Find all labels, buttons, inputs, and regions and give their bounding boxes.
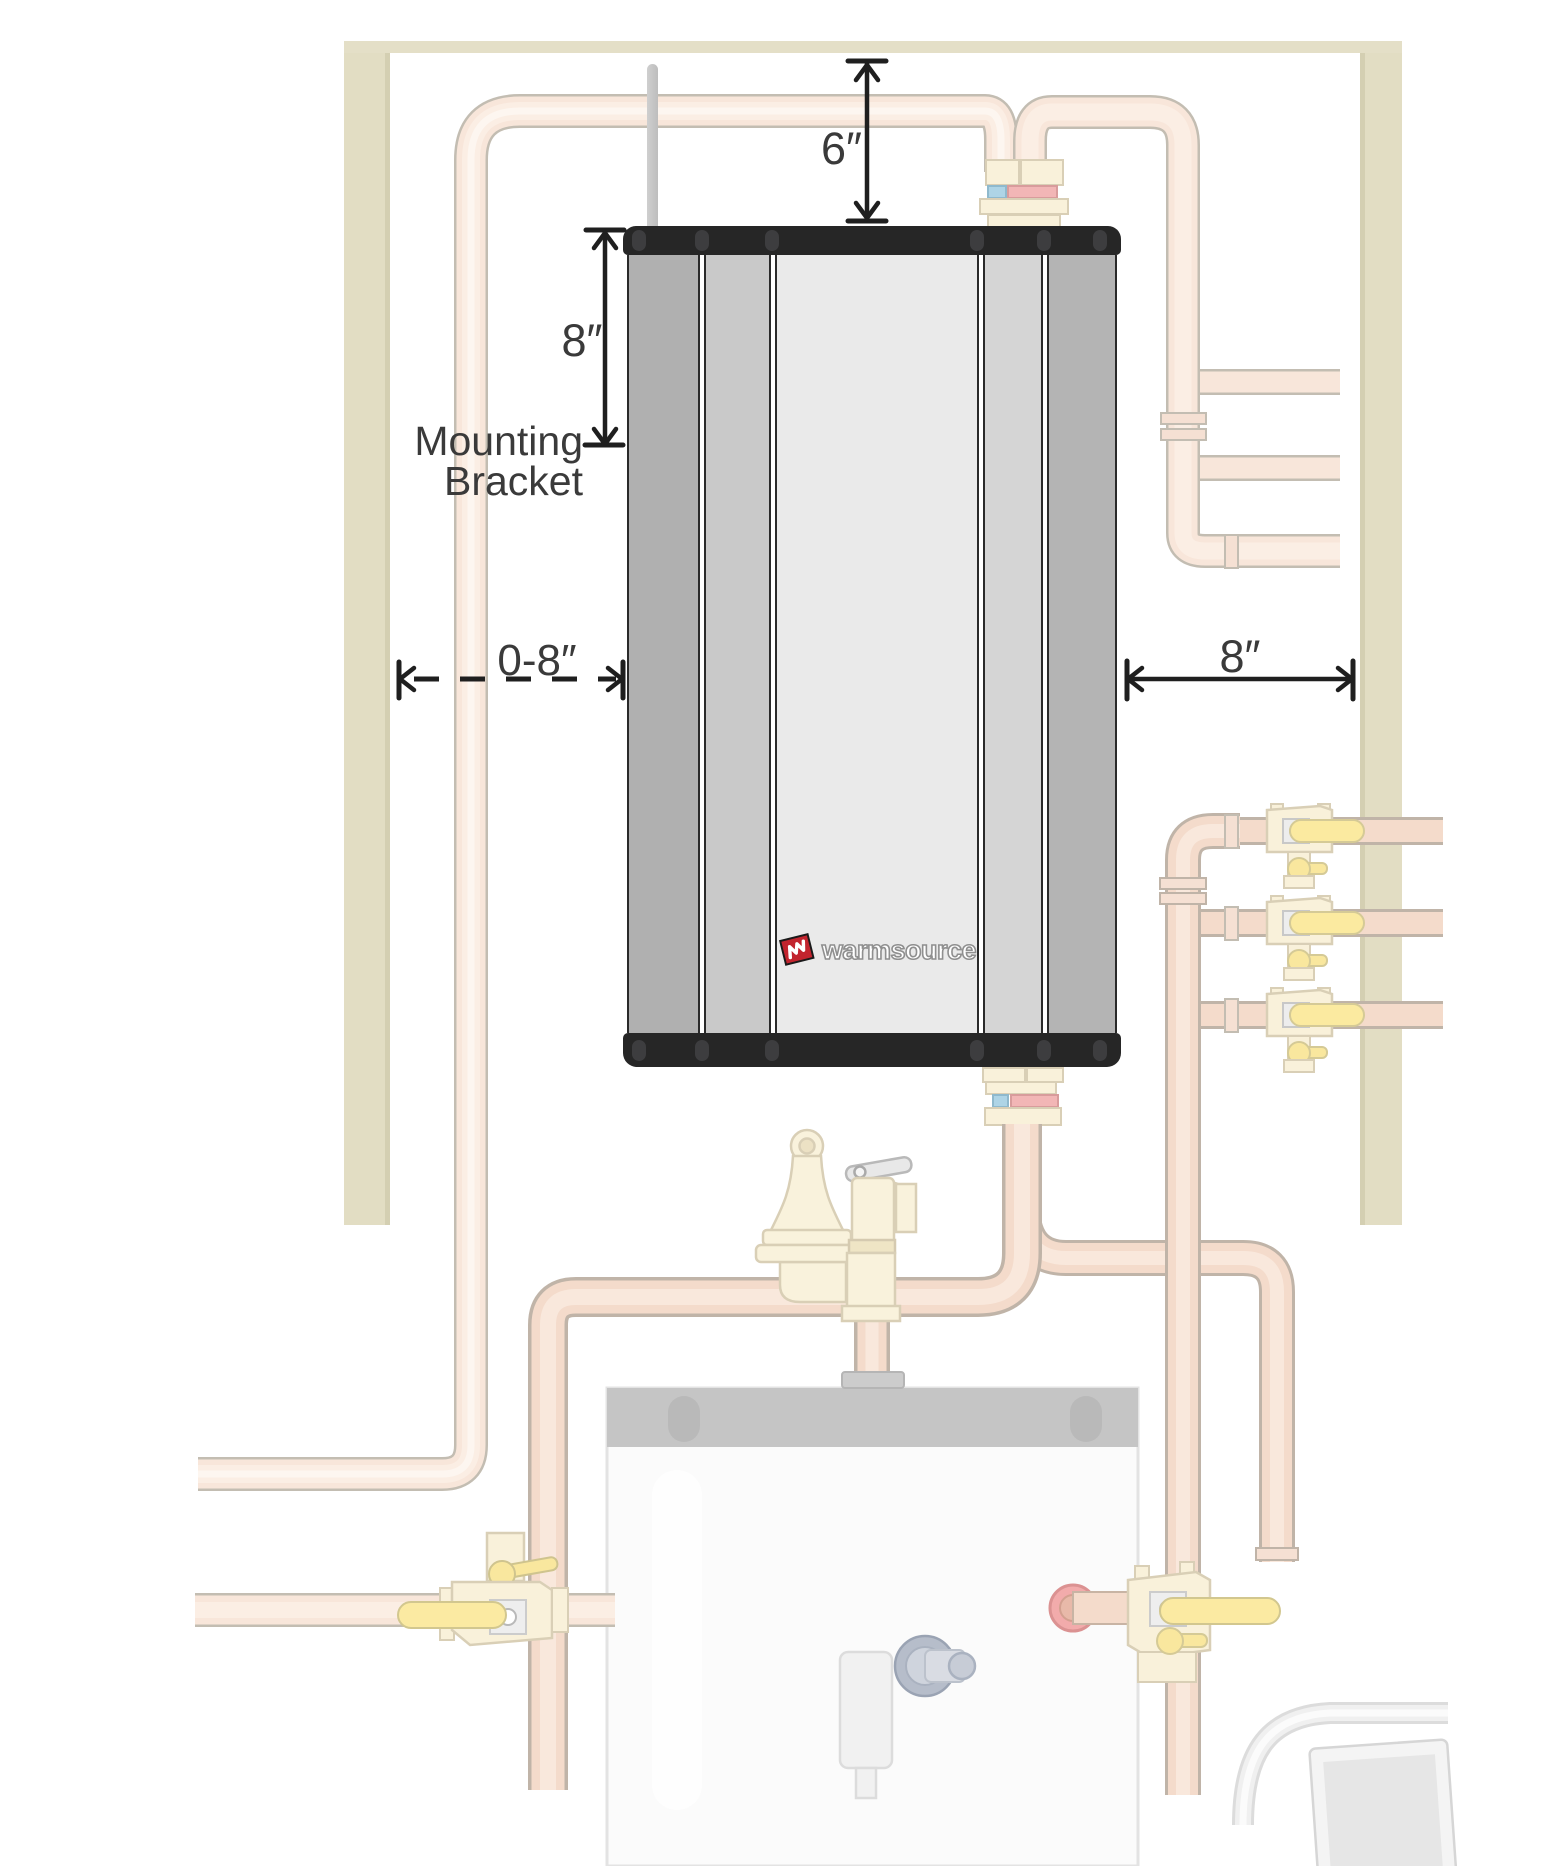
mounting-bracket-caption: Mounting Bracket (303, 421, 583, 501)
mounting-bracket-caption-line1: Mounting (303, 421, 583, 461)
mounting-bracket-caption-line2: Bracket (303, 461, 583, 501)
installation-diagram: warmsource (0, 0, 1556, 1866)
dimension-arrows (0, 0, 1556, 1866)
top-clearance-label: 6″ (742, 123, 862, 175)
bracket-height-label: 8″ (502, 316, 662, 366)
left-clearance-label: 0-8″ (457, 638, 617, 684)
right-clearance-label: 8″ (1160, 633, 1320, 681)
